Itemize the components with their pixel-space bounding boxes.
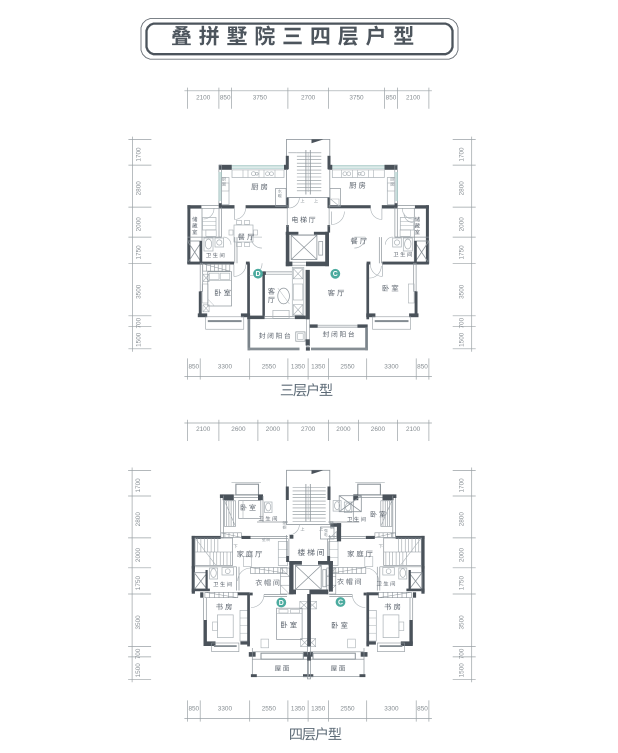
- svg-text:D: D: [279, 600, 284, 607]
- svg-text:D: D: [255, 271, 260, 278]
- svg-text:1700: 1700: [459, 478, 466, 493]
- svg-text:3750: 3750: [253, 94, 268, 101]
- svg-text:850: 850: [386, 94, 397, 101]
- svg-text:1500: 1500: [459, 663, 466, 678]
- svg-text:2700: 2700: [301, 426, 316, 433]
- svg-text:3300: 3300: [384, 705, 399, 712]
- svg-text:1350: 1350: [291, 705, 306, 712]
- svg-text:2550: 2550: [262, 705, 277, 712]
- svg-text:3750: 3750: [349, 94, 364, 101]
- svg-text:2550: 2550: [340, 705, 355, 712]
- svg-text:2000: 2000: [459, 547, 466, 562]
- svg-text:2600: 2600: [231, 426, 246, 433]
- svg-text:2000: 2000: [266, 426, 281, 433]
- svg-text:1350: 1350: [291, 363, 306, 370]
- svg-text:3500: 3500: [459, 284, 466, 299]
- svg-text:2550: 2550: [340, 363, 355, 370]
- svg-text:1750: 1750: [135, 245, 142, 260]
- svg-text:2550: 2550: [262, 363, 277, 370]
- svg-text:700: 700: [459, 648, 466, 659]
- svg-text:1750: 1750: [459, 245, 466, 260]
- svg-text:3500: 3500: [459, 615, 466, 630]
- svg-text:3500: 3500: [135, 284, 142, 299]
- svg-text:850: 850: [220, 94, 231, 101]
- svg-text:850: 850: [417, 705, 428, 712]
- svg-text:2100: 2100: [196, 94, 211, 101]
- svg-text:2000: 2000: [135, 217, 142, 232]
- svg-text:3300: 3300: [384, 363, 399, 370]
- svg-text:2800: 2800: [135, 181, 142, 196]
- svg-text:2100: 2100: [196, 426, 211, 433]
- svg-text:1750: 1750: [135, 576, 142, 591]
- svg-text:700: 700: [135, 317, 142, 328]
- svg-text:1500: 1500: [135, 332, 142, 347]
- svg-text:1500: 1500: [135, 663, 142, 678]
- svg-text:850: 850: [188, 705, 199, 712]
- svg-text:3300: 3300: [218, 363, 233, 370]
- svg-text:2700: 2700: [301, 94, 316, 101]
- svg-text:1350: 1350: [311, 363, 326, 370]
- svg-text:850: 850: [417, 363, 428, 370]
- svg-text:2000: 2000: [336, 426, 351, 433]
- svg-text:2000: 2000: [135, 547, 142, 562]
- svg-text:1700: 1700: [459, 147, 466, 162]
- svg-text:C: C: [333, 271, 338, 278]
- svg-text:850: 850: [188, 363, 199, 370]
- svg-text:2800: 2800: [459, 512, 466, 527]
- svg-text:1350: 1350: [311, 705, 326, 712]
- svg-text:1700: 1700: [135, 478, 142, 493]
- svg-text:700: 700: [459, 317, 466, 328]
- svg-text:700: 700: [135, 648, 142, 659]
- svg-text:2000: 2000: [459, 217, 466, 232]
- svg-text:1500: 1500: [459, 332, 466, 347]
- svg-text:2800: 2800: [459, 181, 466, 196]
- svg-text:1700: 1700: [135, 147, 142, 162]
- svg-text:3500: 3500: [135, 615, 142, 630]
- svg-text:3300: 3300: [218, 705, 233, 712]
- svg-text:2600: 2600: [371, 426, 386, 433]
- svg-text:2800: 2800: [135, 512, 142, 527]
- svg-text:1750: 1750: [459, 576, 466, 591]
- svg-text:2100: 2100: [406, 426, 421, 433]
- svg-text:C: C: [338, 599, 343, 606]
- svg-text:2100: 2100: [406, 94, 421, 101]
